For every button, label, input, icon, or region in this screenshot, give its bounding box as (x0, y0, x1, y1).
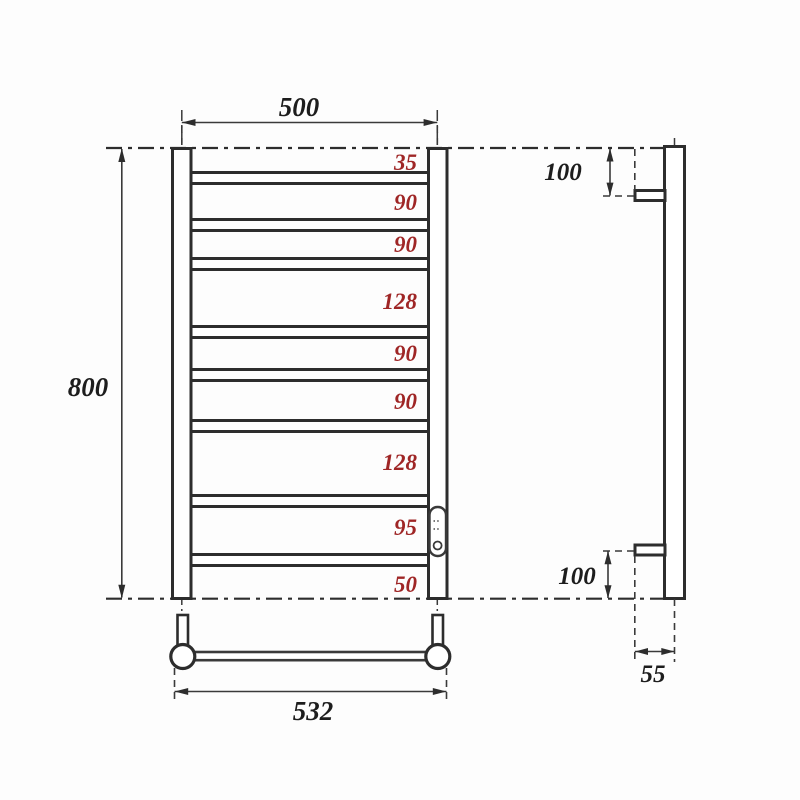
right-mount-stem (433, 615, 444, 647)
arrow-down-icon (605, 585, 612, 598)
heating-control-switch (430, 507, 447, 556)
rung-gap-label-6: 90 (394, 389, 418, 414)
rung-3 (191, 259, 429, 270)
control-indicator-icon (434, 542, 442, 550)
left-mount-flange (171, 645, 195, 669)
rung-gap-label-4: 128 (383, 289, 418, 314)
side-bottom-bracket (635, 545, 665, 555)
rung-8 (191, 555, 429, 566)
rung-6 (191, 421, 429, 432)
dimension-mount-width: 532 (175, 668, 447, 726)
arrow-up-icon (607, 148, 614, 161)
rung-gap-label-3: 90 (394, 232, 418, 257)
dimension-top-bracket-offset: 100 (544, 148, 635, 196)
rung-7 (191, 496, 429, 507)
drawing-canvas: 500 800 532 35 90 90 128 90 90 128 95 50… (0, 0, 800, 800)
rung-gap-label-9: 50 (394, 572, 418, 597)
rung-gap-label-8: 95 (394, 515, 417, 540)
arrow-right-icon (424, 119, 438, 126)
arrow-right-icon (661, 648, 674, 655)
rung-gap-label-1: 35 (393, 150, 417, 175)
rung-1 (191, 173, 429, 184)
dim-height-label: 800 (68, 372, 109, 402)
rung-gap-label-2: 90 (394, 190, 418, 215)
arrow-left-icon (182, 119, 196, 126)
side-top-bracket (635, 191, 665, 201)
rung-gap-label-5: 90 (394, 341, 418, 366)
arrow-right-icon (433, 688, 447, 695)
dim-top-offset-label: 100 (544, 159, 582, 186)
dimension-overall-width: 500 (182, 92, 437, 147)
arrow-down-icon (607, 183, 614, 196)
arrow-left-icon (175, 688, 189, 695)
right-mount-flange (426, 645, 450, 669)
towel-rail-dimension-drawing: 500 800 532 35 90 90 128 90 90 128 95 50… (0, 0, 800, 800)
dim-depth-label: 55 (641, 661, 666, 688)
arrow-down-icon (118, 585, 125, 599)
dimension-overall-height: 800 (68, 148, 126, 598)
left-mount-stem (178, 615, 189, 647)
front-left-post (173, 149, 192, 599)
arrow-left-icon (635, 648, 648, 655)
dim-mount-width-label: 532 (293, 696, 334, 726)
rung-gap-label-7: 128 (383, 450, 418, 475)
dim-width-label: 500 (279, 92, 320, 122)
rung-5 (191, 370, 429, 381)
dimension-bottom-bracket-offset: 100 (558, 551, 634, 598)
rung-2 (191, 220, 429, 231)
mount-cross-bar (194, 652, 427, 660)
arrow-up-icon (605, 551, 612, 564)
dim-bottom-offset-label: 100 (558, 563, 596, 590)
rung-4 (191, 327, 429, 338)
arrow-up-icon (118, 148, 125, 162)
side-post (665, 147, 685, 599)
